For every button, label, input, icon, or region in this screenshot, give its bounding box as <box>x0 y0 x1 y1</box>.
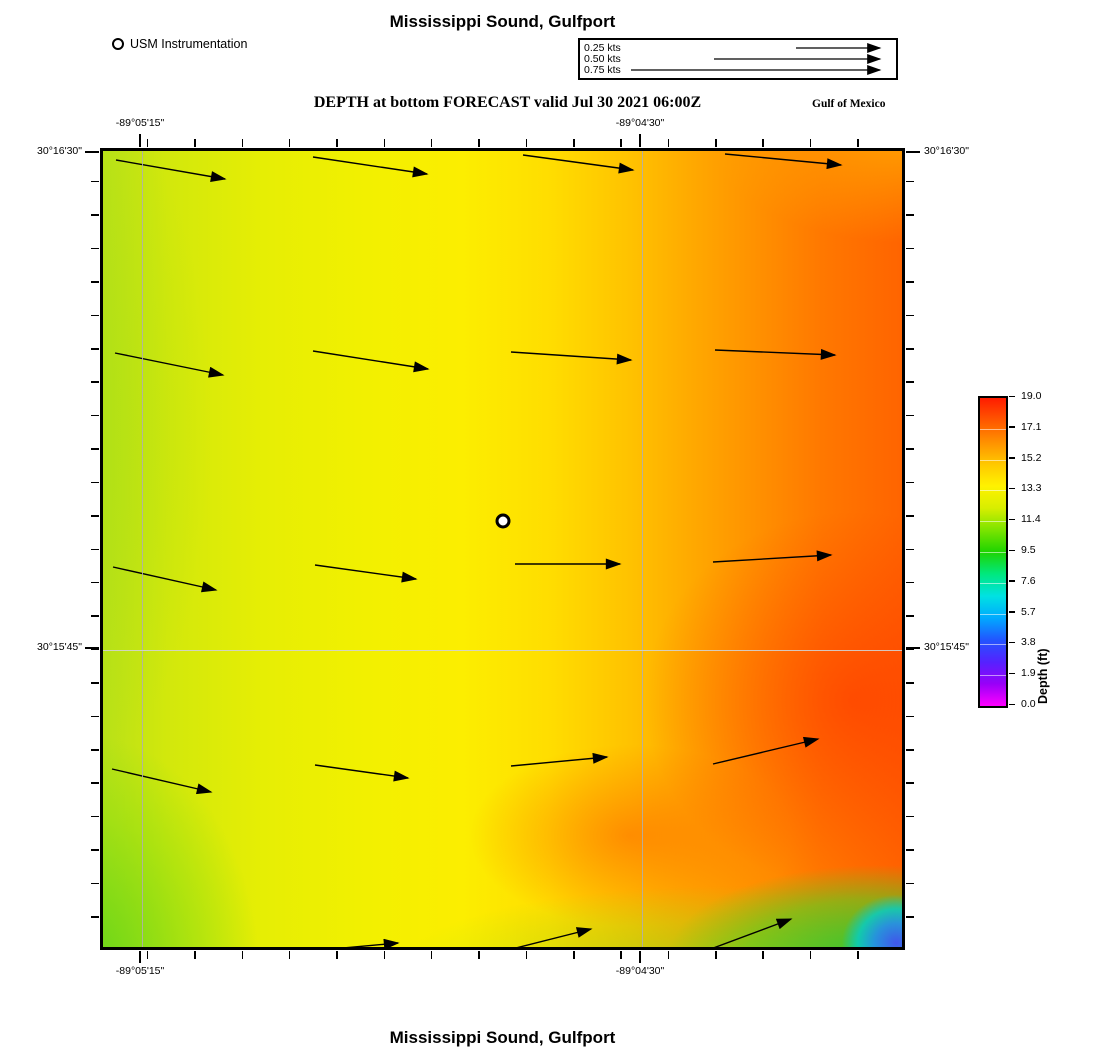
axis-major-tick <box>139 951 141 963</box>
axis-minor-tick <box>620 951 622 959</box>
lon-tick-label-bottom: -89°04'30" <box>580 965 700 977</box>
colorbar-tick <box>1009 396 1015 398</box>
colorbar-tick <box>1009 642 1015 644</box>
axis-minor-tick <box>526 951 528 959</box>
axis-major-tick <box>139 134 141 147</box>
axis-minor-tick <box>91 682 99 684</box>
longitude-gridline <box>142 151 143 947</box>
colorbar <box>978 396 1008 708</box>
axis-major-tick <box>639 951 641 963</box>
axis-minor-tick <box>289 139 291 147</box>
axis-minor-tick <box>906 348 914 350</box>
axis-minor-tick <box>91 816 99 818</box>
axis-minor-tick <box>906 281 914 283</box>
current-vector-arrow <box>715 350 835 355</box>
axis-minor-tick <box>194 951 196 959</box>
colorbar-level-line <box>980 521 1006 522</box>
axis-minor-tick <box>431 951 433 959</box>
axis-minor-tick <box>242 139 244 147</box>
current-vector-field <box>103 151 902 947</box>
axis-minor-tick <box>906 381 914 383</box>
colorbar-tick <box>1009 550 1015 552</box>
colorbar-tick <box>1009 457 1015 459</box>
axis-minor-tick <box>906 782 914 784</box>
axis-minor-tick <box>91 281 99 283</box>
region-label: Gulf of Mexico <box>812 98 885 110</box>
axis-minor-tick <box>91 348 99 350</box>
axis-minor-tick <box>906 181 914 183</box>
axis-minor-tick <box>91 549 99 551</box>
lat-tick-label-right: 30°15'45" <box>924 641 1014 653</box>
axis-minor-tick <box>620 139 622 147</box>
axis-minor-tick <box>906 515 914 517</box>
colorbar-tick-label: 13.3 <box>1021 482 1055 494</box>
station-marker <box>497 515 509 527</box>
axis-minor-tick <box>91 849 99 851</box>
lon-tick-label-top: -89°05'15" <box>80 117 200 129</box>
colorbar-level-line <box>980 552 1006 553</box>
colorbar-tick-label: 0.0 <box>1021 698 1055 710</box>
forecast-subtitle: DEPTH at bottom FORECAST valid Jul 30 20… <box>105 94 910 112</box>
axis-minor-tick <box>906 816 914 818</box>
axis-minor-tick <box>906 649 914 651</box>
axis-minor-tick <box>810 139 812 147</box>
axis-minor-tick <box>91 214 99 216</box>
axis-minor-tick <box>906 415 914 417</box>
axis-minor-tick <box>147 139 149 147</box>
axis-minor-tick <box>526 139 528 147</box>
axis-minor-tick <box>906 716 914 718</box>
axis-minor-tick <box>336 951 338 959</box>
axis-minor-tick <box>906 482 914 484</box>
axis-minor-tick <box>384 951 386 959</box>
axis-minor-tick <box>91 181 99 183</box>
axis-minor-tick <box>91 482 99 484</box>
colorbar-tick <box>1009 488 1015 490</box>
axis-minor-tick <box>906 582 914 584</box>
axis-minor-tick <box>91 448 99 450</box>
latitude-gridline <box>103 650 902 651</box>
axis-minor-tick <box>91 582 99 584</box>
axis-minor-tick <box>857 951 859 959</box>
longitude-gridline <box>642 151 643 947</box>
station-marker-icon <box>112 38 124 50</box>
axis-minor-tick <box>91 315 99 317</box>
current-vector-arrow <box>511 352 631 360</box>
axis-minor-tick <box>573 139 575 147</box>
colorbar-tick-label: 7.6 <box>1021 575 1055 587</box>
current-vector-arrow <box>343 943 398 947</box>
axis-minor-tick <box>906 315 914 317</box>
axis-minor-tick <box>194 139 196 147</box>
axis-minor-tick <box>810 951 812 959</box>
axis-minor-tick <box>906 749 914 751</box>
current-vector-arrow <box>315 565 416 579</box>
axis-minor-tick <box>91 716 99 718</box>
axis-minor-tick <box>906 549 914 551</box>
colorbar-level-line <box>980 614 1006 615</box>
colorbar-tick-label: 1.9 <box>1021 667 1055 679</box>
current-vector-arrow <box>313 157 427 174</box>
axis-major-tick <box>85 647 99 649</box>
axis-major-tick <box>639 134 641 147</box>
axis-minor-tick <box>431 139 433 147</box>
axis-minor-tick <box>715 951 717 959</box>
colorbar-tick <box>1009 580 1015 582</box>
axis-minor-tick <box>906 916 914 918</box>
axis-minor-tick <box>478 139 480 147</box>
current-vector-arrow <box>713 739 818 764</box>
axis-minor-tick <box>91 782 99 784</box>
axis-minor-tick <box>857 139 859 147</box>
axis-minor-tick <box>906 248 914 250</box>
axis-minor-tick <box>91 515 99 517</box>
current-vector-arrow <box>708 919 791 947</box>
station-legend: USM Instrumentation <box>112 37 247 51</box>
axis-minor-tick <box>906 883 914 885</box>
axis-minor-tick <box>762 139 764 147</box>
page-title: Mississippi Sound, Gulfport <box>100 12 905 32</box>
axis-minor-tick <box>91 883 99 885</box>
speed-scale-legend: 0.25 kts 0.50 kts 0.75 kts <box>578 38 898 80</box>
axis-minor-tick <box>906 849 914 851</box>
axis-minor-tick <box>336 139 338 147</box>
colorbar-tick-label: 19.0 <box>1021 390 1055 402</box>
axis-minor-tick <box>242 951 244 959</box>
axis-minor-tick <box>91 415 99 417</box>
colorbar-level-line <box>980 460 1006 461</box>
current-vector-arrow <box>313 351 428 369</box>
axis-minor-tick <box>762 951 764 959</box>
colorbar-tick <box>1009 519 1015 521</box>
colorbar-tick <box>1009 611 1015 613</box>
axis-minor-tick <box>147 951 149 959</box>
speed-scale-arrows <box>580 40 896 78</box>
current-vector-arrow <box>523 155 633 170</box>
axis-minor-tick <box>91 615 99 617</box>
axis-minor-tick <box>906 615 914 617</box>
axis-minor-tick <box>91 916 99 918</box>
station-legend-label: USM Instrumentation <box>130 37 247 51</box>
axis-minor-tick <box>906 448 914 450</box>
lat-tick-label-left: 30°16'30" <box>0 145 82 157</box>
colorbar-tick-label: 9.5 <box>1021 544 1055 556</box>
colorbar-tick-label: 5.7 <box>1021 606 1055 618</box>
axis-minor-tick <box>906 682 914 684</box>
colorbar-level-line <box>980 675 1006 676</box>
lat-tick-label-right: 30°16'30" <box>924 145 1014 157</box>
lon-tick-label-bottom: -89°05'15" <box>80 965 200 977</box>
footer-title: Mississippi Sound, Gulfport <box>100 1028 905 1048</box>
axis-minor-tick <box>573 951 575 959</box>
current-vector-arrow <box>315 765 408 778</box>
current-vector-arrow <box>508 929 591 947</box>
depth-heatmap <box>100 148 905 950</box>
current-vector-arrow <box>713 555 831 562</box>
axis-minor-tick <box>91 749 99 751</box>
axis-minor-tick <box>668 139 670 147</box>
axis-major-tick <box>906 151 920 153</box>
forecast-figure: Mississippi Sound, Gulfport USM Instrume… <box>0 0 1100 1050</box>
lat-tick-label-left: 30°15'45" <box>0 641 82 653</box>
axis-minor-tick <box>478 951 480 959</box>
current-vector-arrow <box>511 757 607 766</box>
axis-minor-tick <box>715 139 717 147</box>
colorbar-tick <box>1009 426 1015 428</box>
axis-minor-tick <box>289 951 291 959</box>
current-vector-arrow <box>113 567 216 590</box>
axis-minor-tick <box>91 381 99 383</box>
axis-minor-tick <box>668 951 670 959</box>
colorbar-tick-label: 17.1 <box>1021 421 1055 433</box>
colorbar-level-line <box>980 583 1006 584</box>
axis-minor-tick <box>91 248 99 250</box>
axis-major-tick <box>906 647 920 649</box>
colorbar-level-line <box>980 429 1006 430</box>
current-vector-arrow <box>725 154 841 165</box>
axis-minor-tick <box>906 214 914 216</box>
current-vector-arrow <box>112 769 211 792</box>
current-vector-arrow <box>116 160 225 179</box>
axis-minor-tick <box>384 139 386 147</box>
lon-tick-label-top: -89°04'30" <box>580 117 700 129</box>
colorbar-tick-label: 15.2 <box>1021 452 1055 464</box>
colorbar-level-line <box>980 490 1006 491</box>
current-vector-arrow <box>115 353 223 375</box>
colorbar-tick <box>1009 673 1015 675</box>
colorbar-tick-label: 11.4 <box>1021 513 1055 525</box>
axis-minor-tick <box>91 649 99 651</box>
axis-major-tick <box>85 151 99 153</box>
colorbar-tick <box>1009 704 1015 706</box>
colorbar-tick-label: 3.8 <box>1021 636 1055 648</box>
